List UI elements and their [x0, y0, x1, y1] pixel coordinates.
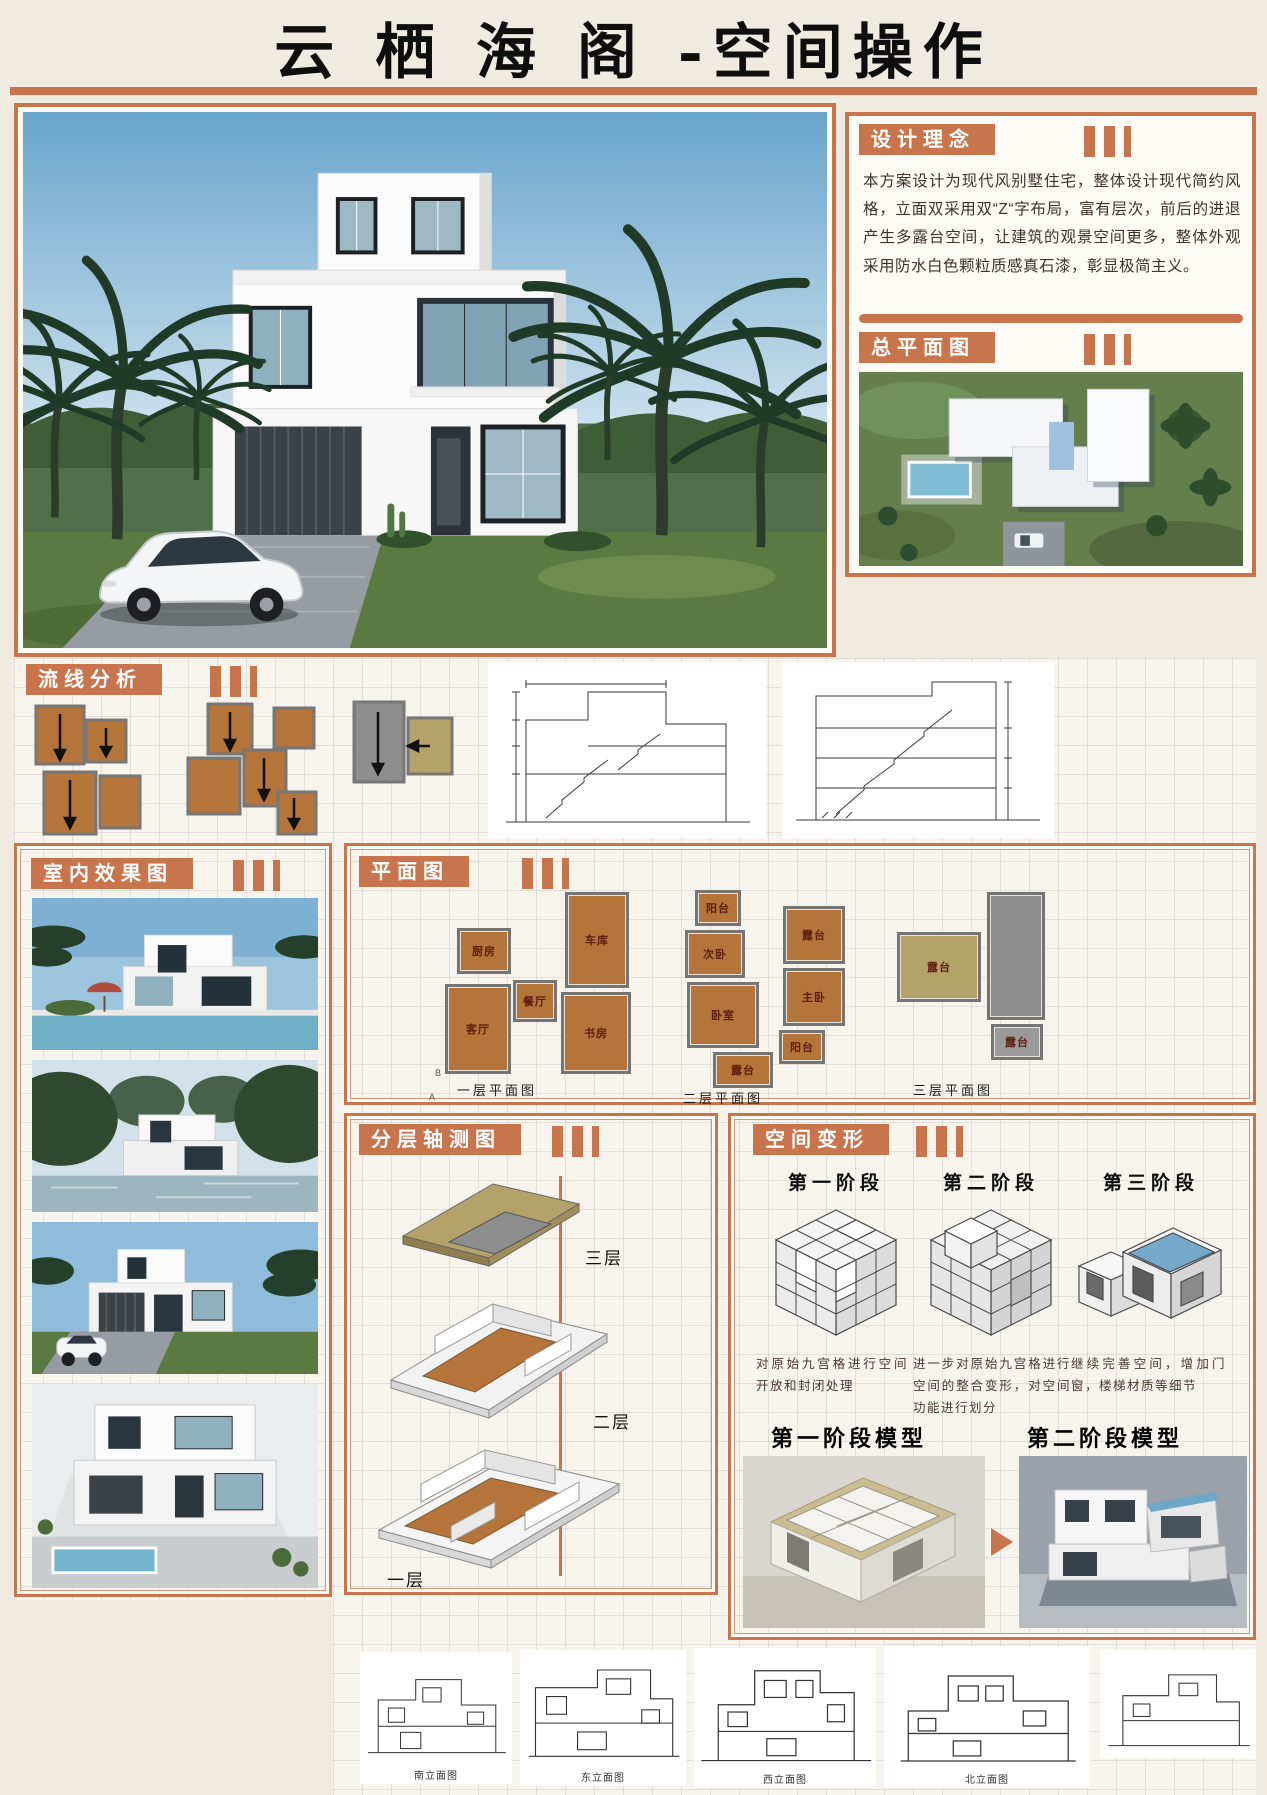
- floor-plan-1: 厨房 车库 餐厅 书房 客厅: [427, 890, 639, 1076]
- render-thumb-model-view: [32, 1384, 318, 1588]
- transformation-panel: 空间变形 第一阶段 第二阶段 第三阶段: [728, 1113, 1256, 1640]
- stage-3-massing-diagram: [1073, 1210, 1225, 1338]
- plan-room: 餐厅: [513, 980, 557, 1022]
- section-marker: A: [429, 1092, 435, 1102]
- elevation-svg: [884, 1646, 1090, 1771]
- plan-caption: 三层平面图: [913, 1080, 993, 1099]
- axonometric-panel: 分层轴测图 三层 二层: [344, 1113, 718, 1595]
- arrow-icon: [991, 1528, 1013, 1556]
- room-label: 次卧: [703, 946, 727, 962]
- plan-room: 卧室: [687, 982, 759, 1048]
- stage-description: 进一步对原始九宫格进行空间的整合变形，对空间功能进行划分: [913, 1354, 1071, 1420]
- elevation-svg: [694, 1648, 876, 1771]
- room-label: 餐厅: [523, 993, 547, 1009]
- design-concept-header: 设计理念: [859, 124, 995, 155]
- page-title: 云 栖 海 阁 -空间操作: [0, 4, 1267, 91]
- stage-1-cube-diagram: [769, 1204, 904, 1344]
- room-label: 厨房: [472, 943, 496, 959]
- stage-label: 第一阶段: [761, 1168, 911, 1195]
- header-ticks: [916, 1126, 963, 1157]
- presentation-board: 云 栖 海 阁 -空间操作: [0, 0, 1267, 1795]
- elevation-drawing: 南立面图: [360, 1652, 512, 1784]
- header-ticks: [210, 666, 257, 697]
- room-label: 卧室: [711, 1007, 735, 1023]
- axon-level-label: 一层: [387, 1566, 425, 1591]
- elevation-caption: 西立面图: [694, 1771, 876, 1786]
- axon-level-2: [375, 1284, 615, 1424]
- elevation-svg: [360, 1652, 512, 1768]
- model-photo-2-svg: [1019, 1456, 1247, 1628]
- plan-caption: 一层平面图: [457, 1080, 537, 1099]
- stage-2-cube-diagram: [924, 1204, 1059, 1344]
- elevation-drawing-small: [1100, 1650, 1256, 1758]
- elevation-caption: 北立面图: [884, 1771, 1090, 1786]
- model-photo-stage-1: [743, 1456, 985, 1628]
- room-label: 露台: [1005, 1034, 1029, 1050]
- model-photo-1-svg: [743, 1456, 985, 1628]
- room-label: 书房: [584, 1025, 608, 1041]
- elevation-drawing: 西立面图: [694, 1648, 876, 1788]
- render-thumb-front: [32, 1222, 318, 1374]
- title-divider: [10, 87, 1257, 95]
- circulation-diagram-1: [28, 702, 153, 840]
- section-drawing-2: [782, 662, 1054, 838]
- elevation-caption: 东立面图: [520, 1769, 686, 1784]
- plan-room: 阳台: [695, 890, 741, 926]
- render-thumb-pool: [32, 898, 318, 1050]
- room-label: 主卧: [802, 989, 826, 1005]
- section-marker: B: [435, 1068, 441, 1078]
- renders-header: 室内效果图: [31, 858, 193, 889]
- plan-caption: 二层平面图: [683, 1088, 763, 1107]
- header-ticks: [522, 858, 569, 889]
- render-thumb-forest: [32, 1060, 318, 1212]
- room-label: 露台: [927, 959, 951, 975]
- stage-description: 继续完善空间，增加门窗，楼梯材质等细节: [1071, 1354, 1226, 1398]
- model-stage-label: 第二阶段模型: [1027, 1421, 1183, 1453]
- hero-villa-render: [23, 112, 827, 648]
- header-ticks: [552, 1126, 599, 1157]
- section-drawing-1: [488, 662, 766, 838]
- site-plan-header: 总平面图: [859, 332, 995, 363]
- transformation-header: 空间变形: [753, 1124, 889, 1155]
- plan-room: 阳台: [779, 1030, 825, 1064]
- plan-room: 主卧: [783, 968, 845, 1026]
- axon-level-3: [383, 1168, 583, 1268]
- room-label: 阳台: [706, 900, 730, 916]
- floor-plans-panel: 平面图 厨房 车库 餐厅 书房 客厅 B A 一层平面图 阳台 露台 次卧 卧室…: [344, 843, 1256, 1105]
- axon-level-1: [365, 1438, 627, 1572]
- room-label: 阳台: [790, 1039, 814, 1055]
- plan-room: 露台: [897, 932, 981, 1002]
- axon-level-label: 三层: [585, 1244, 623, 1269]
- plan-room: 露台: [713, 1052, 773, 1088]
- elevation-drawing: 东立面图: [520, 1650, 686, 1786]
- site-plan-aerial-render: [859, 372, 1243, 566]
- header-ticks: [1084, 126, 1131, 157]
- plan-room: 露台: [991, 1024, 1043, 1060]
- axon-level-label: 二层: [593, 1408, 631, 1433]
- hero-render-frame: [14, 103, 836, 657]
- plan-room: 客厅: [445, 984, 511, 1074]
- plan-room: 厨房: [457, 928, 511, 974]
- stage-label: 第二阶段: [916, 1168, 1066, 1195]
- model-photo-stage-2: [1019, 1456, 1247, 1628]
- circulation-header: 流线分析: [26, 664, 162, 695]
- stage-label: 第三阶段: [1076, 1168, 1226, 1195]
- plan-room: 次卧: [685, 930, 745, 978]
- floor-plan-2: 阳台 露台 次卧 卧室 主卧 露台 阳台: [655, 890, 855, 1088]
- section-drawing-2-svg: [782, 662, 1054, 838]
- header-ticks: [1084, 334, 1131, 365]
- concept-siteplan-panel: 设计理念 本方案设计为现代风别墅住宅，整体设计现代简约风格，立面双采用双“Z“字…: [845, 112, 1256, 577]
- plan-room: 露台: [783, 906, 845, 964]
- floor-plans-header: 平面图: [359, 856, 469, 887]
- section-drawing-1-svg: [488, 662, 766, 838]
- plan-room: [987, 892, 1045, 1020]
- design-concept-body: 本方案设计为现代风别墅住宅，整体设计现代简约风格，立面双采用双“Z“字布局，富有…: [863, 168, 1241, 281]
- circulation-diagram-3: [348, 696, 458, 796]
- renders-panel: 室内效果图: [14, 843, 332, 1597]
- room-label: 露台: [731, 1062, 755, 1078]
- circulation-diagram-2: [182, 700, 322, 840]
- section-divider: [859, 314, 1243, 323]
- elevation-svg: [520, 1650, 686, 1770]
- model-stage-label: 第一阶段模型: [771, 1421, 927, 1453]
- room-label: 车库: [585, 932, 609, 948]
- axonometric-header: 分层轴测图: [359, 1124, 521, 1155]
- elevation-caption: 南立面图: [360, 1767, 512, 1782]
- header-ticks: [233, 860, 280, 891]
- stage-description: 对原始九宫格进行空间开放和封闭处理: [756, 1354, 908, 1398]
- plan-room: 书房: [561, 992, 631, 1074]
- floor-plan-3: 露台 露台: [891, 888, 1081, 1060]
- room-label: 客厅: [466, 1021, 490, 1037]
- background-patch: [14, 1600, 332, 1795]
- elevation-svg: [1100, 1650, 1256, 1758]
- plan-room: 车库: [565, 892, 629, 988]
- room-label: 露台: [802, 927, 826, 943]
- elevation-drawing: 北立面图: [884, 1646, 1090, 1788]
